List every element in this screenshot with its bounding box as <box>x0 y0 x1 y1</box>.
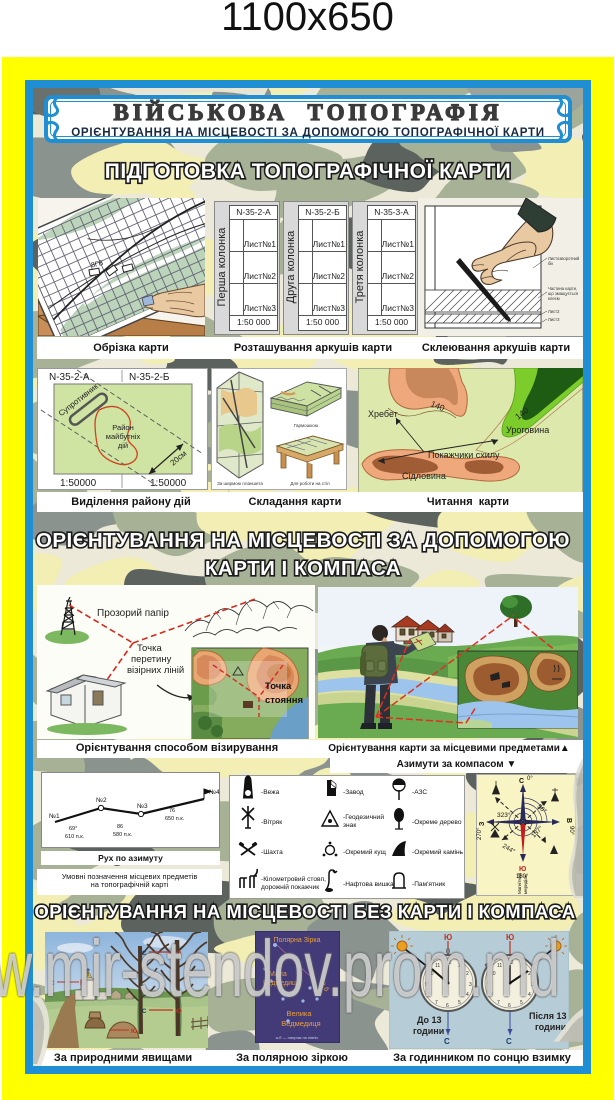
svg-text:270°: 270° <box>477 827 483 840</box>
svg-text:Лист2: Лист2 <box>548 309 560 314</box>
svg-text:стояння: стояння <box>265 695 303 706</box>
svg-text:Хребет: Хребет <box>368 409 398 419</box>
svg-text:N-35-2-Б: N-35-2-Б <box>129 372 170 383</box>
svg-text:-Шахта: -Шахта <box>261 849 283 856</box>
svg-text:майбутніх: майбутніх <box>106 432 141 441</box>
svg-text:знак: знак <box>343 822 356 829</box>
svg-text:С: С <box>444 1037 450 1046</box>
svg-text:ОРІЄНТУВАННЯ НА МІСЦЕВОСТІ ЗА: ОРІЄНТУВАННЯ НА МІСЦЕВОСТІ ЗА ДОПОМОГОЮ <box>36 529 570 552</box>
svg-text:323°: 323° <box>497 811 511 819</box>
svg-text:Гармошкою: Гармошкою <box>294 423 319 428</box>
svg-text:№4: №4 <box>209 789 220 796</box>
svg-text:86: 86 <box>117 824 123 830</box>
svg-text:Точка: Точка <box>265 681 292 692</box>
svg-text:ПІДГОТОВКА ТОПОГРАФІЧНОЇ КАРТИ: ПІДГОТОВКА ТОПОГРАФІЧНОЇ КАРТИ <box>105 160 512 183</box>
svg-text:650 п.к.: 650 п.к. <box>165 816 185 822</box>
svg-text:-Завод: -Завод <box>343 789 364 796</box>
svg-text:56°: 56° <box>536 803 549 816</box>
svg-text:Прозорий папір: Прозорий папір <box>97 608 169 619</box>
svg-text:години: години <box>413 1026 444 1036</box>
svg-text:Ю: Ю <box>131 1029 137 1035</box>
svg-text:Ведмедиця: Ведмедиця <box>281 1019 320 1028</box>
svg-text:Магнітний: Магнітний <box>516 873 522 894</box>
svg-text:дій: дій <box>118 441 128 450</box>
svg-text:N-35-2-А: N-35-2-А <box>49 372 90 383</box>
svg-text:№1: №1 <box>49 813 60 820</box>
svg-text:КАРТИ І КОМПАСА: КАРТИ І КОМПАСА <box>205 557 401 580</box>
svg-text:-Окремий камінь: -Окремий камінь <box>412 848 464 856</box>
svg-text:Ю: Ю <box>519 866 526 873</box>
svg-text:візірних ліній: візірних ліній <box>127 665 184 676</box>
svg-text:-Нафтова вишка: -Нафтова вишка <box>343 881 394 888</box>
svg-text:Район: Район <box>112 423 133 432</box>
svg-text:0°: 0° <box>527 776 533 782</box>
svg-text:-Окреме дерево: -Окреме дерево <box>412 819 462 826</box>
svg-text:№2: №2 <box>96 797 107 804</box>
svg-text:610 п.к.: 610 п.к. <box>65 834 85 840</box>
svg-text:ОРІЄНТУВАННЯ НА МІСЦЕВОСТІ БЕЗ: ОРІЄНТУВАННЯ НА МІСЦЕВОСТІ БЕЗ КАРТИ І К… <box>34 901 575 922</box>
svg-text:Точка: Точка <box>137 643 162 654</box>
svg-text:-Окремий кущ: -Окремий кущ <box>343 848 387 856</box>
svg-text:№3: №3 <box>137 803 148 810</box>
svg-text:Для роботи на стіл: Для роботи на стіл <box>290 481 330 486</box>
svg-text:С: С <box>506 1037 512 1046</box>
svg-text:1:50000: 1:50000 <box>60 478 97 489</box>
svg-text:До 13: До 13 <box>417 1015 442 1025</box>
svg-text:а-б — напрям на північ: а-б — напрям на північ <box>276 1035 319 1040</box>
svg-text:С: С <box>519 778 524 785</box>
svg-text:69°: 69° <box>69 826 77 832</box>
svg-text:1:50000: 1:50000 <box>150 478 187 489</box>
svg-text:клеєм: клеєм <box>548 296 560 301</box>
svg-text:Покажчики схилу: Покажчики схилу <box>428 450 500 460</box>
svg-text:137°: 137° <box>530 824 545 840</box>
svg-text:-Пам'ятник: -Пам'ятник <box>412 881 445 888</box>
svg-text:меридіан: меридіан <box>523 874 528 894</box>
svg-text:-Кілометровий стовп,: -Кілометровий стовп, <box>261 875 326 883</box>
svg-text:Уроговина: Уроговина <box>506 425 549 435</box>
svg-text:244°: 244° <box>501 842 517 856</box>
svg-text:перетину: перетину <box>131 654 172 665</box>
svg-text:Лист3: Лист3 <box>548 317 560 322</box>
svg-text:-Вежа: -Вежа <box>261 789 280 796</box>
svg-text:580 п.к.: 580 п.к. <box>113 832 133 838</box>
svg-text:За ширмою планшета: За ширмою планшета <box>217 481 263 486</box>
svg-text:-Вітряк: -Вітряк <box>261 818 282 826</box>
svg-text:бік: бік <box>548 261 553 266</box>
svg-text:76: 76 <box>169 808 175 814</box>
svg-text:-АЗС: -АЗС <box>412 789 427 796</box>
svg-text:-Геодезичний: -Геодезичний <box>343 813 384 821</box>
svg-text:дорожній покажчик: дорожній покажчик <box>261 883 319 891</box>
svg-text:З: З <box>479 821 486 826</box>
svg-text:Сідловина: Сідловина <box>402 471 446 481</box>
